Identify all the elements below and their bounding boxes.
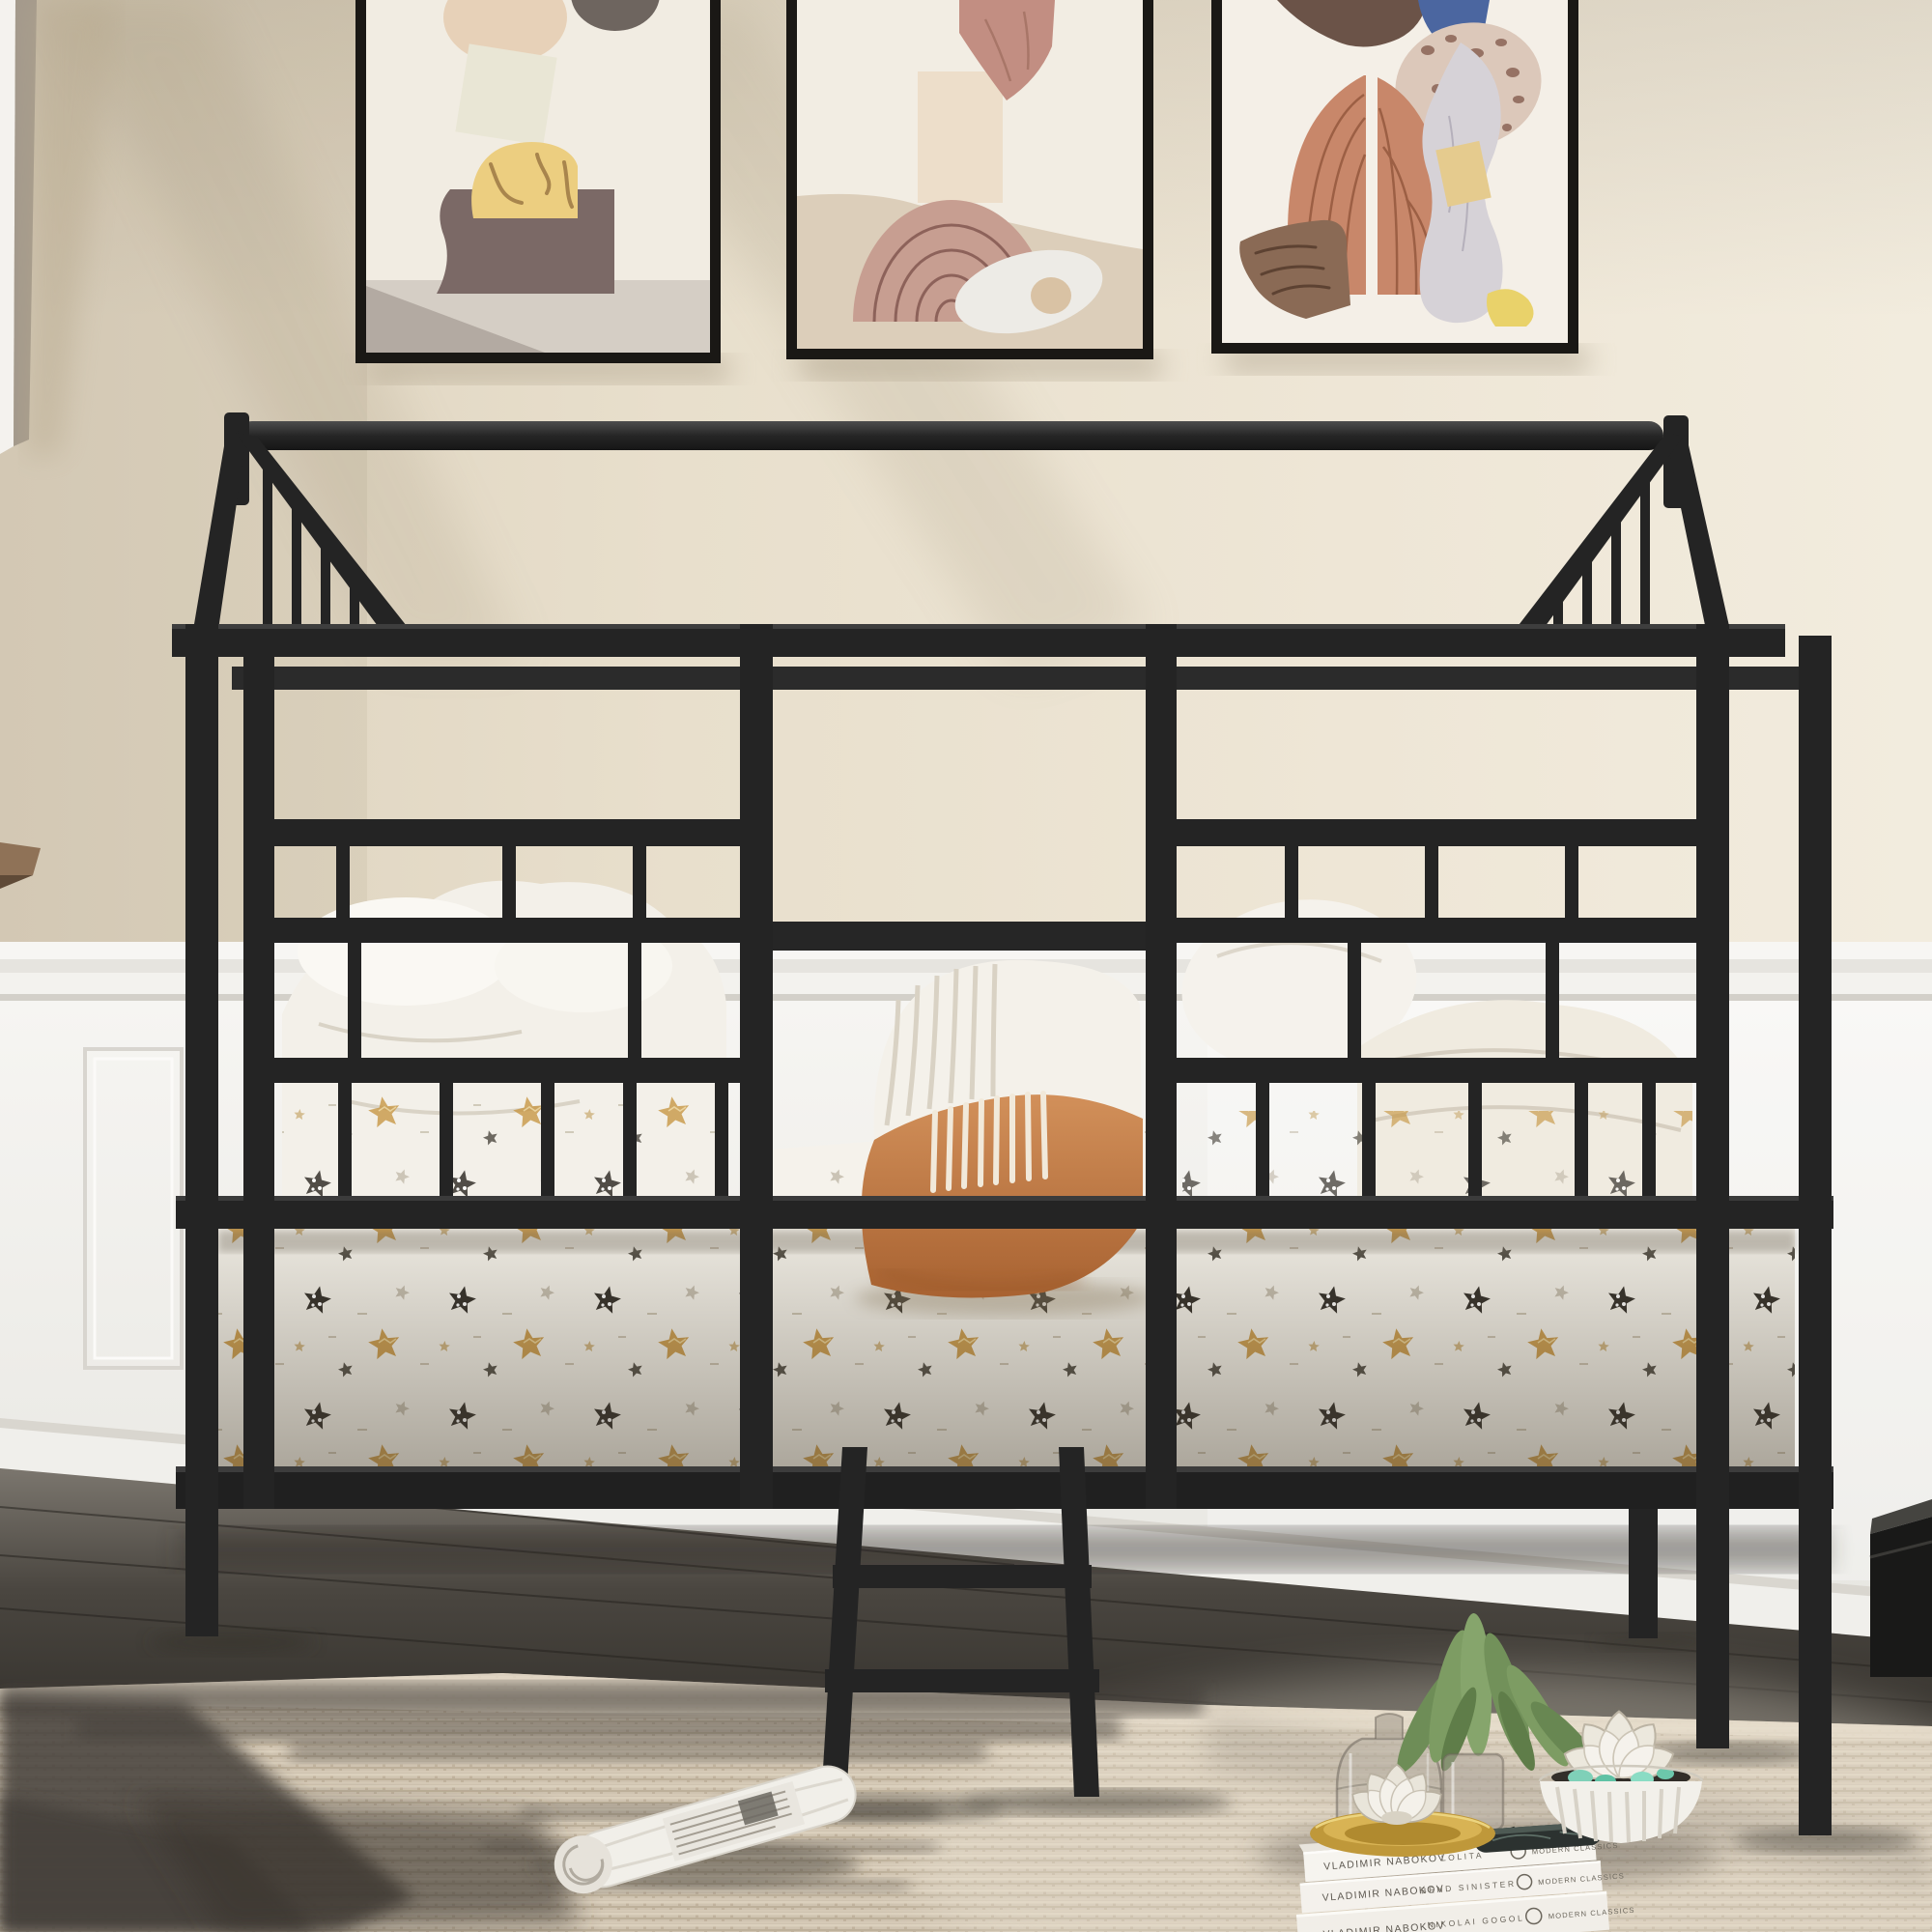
- poster-right-art: [1222, 0, 1568, 343]
- ladder-rung-2: [825, 1669, 1099, 1692]
- poster-left: [355, 0, 728, 383]
- base-rail: [176, 1466, 1833, 1509]
- bed-back-rail: [773, 922, 1146, 951]
- scene-canvas: VLADIMIR NABOKOV NIKOLAI GOGOL MODERN CL…: [0, 0, 1932, 1932]
- leg-inner-right: [1629, 1509, 1658, 1638]
- post-rear-right-leg: [1799, 636, 1832, 1835]
- eaves-rail-front: [172, 624, 1785, 657]
- storage-box: [1870, 1499, 1932, 1677]
- eaves-rail-highlight: [172, 624, 1785, 629]
- base-rail-highlight: [176, 1466, 1833, 1472]
- poster-left-pale-square: [455, 43, 556, 145]
- post-rear-left: [243, 653, 274, 1509]
- post-center-left: [740, 624, 773, 1509]
- bed-floor-shadow: [184, 1529, 1826, 1570]
- poster-middle-column: [918, 71, 1003, 203]
- storage-box-front: [1870, 1517, 1932, 1677]
- poster-left-art: [366, 0, 710, 353]
- ladder-rung-1: [833, 1565, 1092, 1588]
- room-photo: VLADIMIR NABOKOV NIKOLAI GOGOL MODERN CL…: [0, 0, 1932, 1932]
- side-rail-highlight: [176, 1196, 1833, 1201]
- post-front-right-leg: [1696, 624, 1729, 1748]
- poster-middle: [786, 0, 1161, 379]
- post-front-left-leg: [185, 624, 218, 1636]
- cloche-knob: [1376, 1714, 1403, 1739]
- poster-middle-shell-dot: [1031, 277, 1071, 314]
- side-rail: [176, 1196, 1833, 1229]
- left-pillow-1: [298, 897, 514, 1006]
- eaves-rail-back: [232, 667, 1832, 690]
- poster-right: [1211, 0, 1588, 373]
- post-center-right: [1146, 624, 1177, 1509]
- poster-middle-art: [797, 0, 1143, 349]
- ridge-beam: [238, 421, 1663, 450]
